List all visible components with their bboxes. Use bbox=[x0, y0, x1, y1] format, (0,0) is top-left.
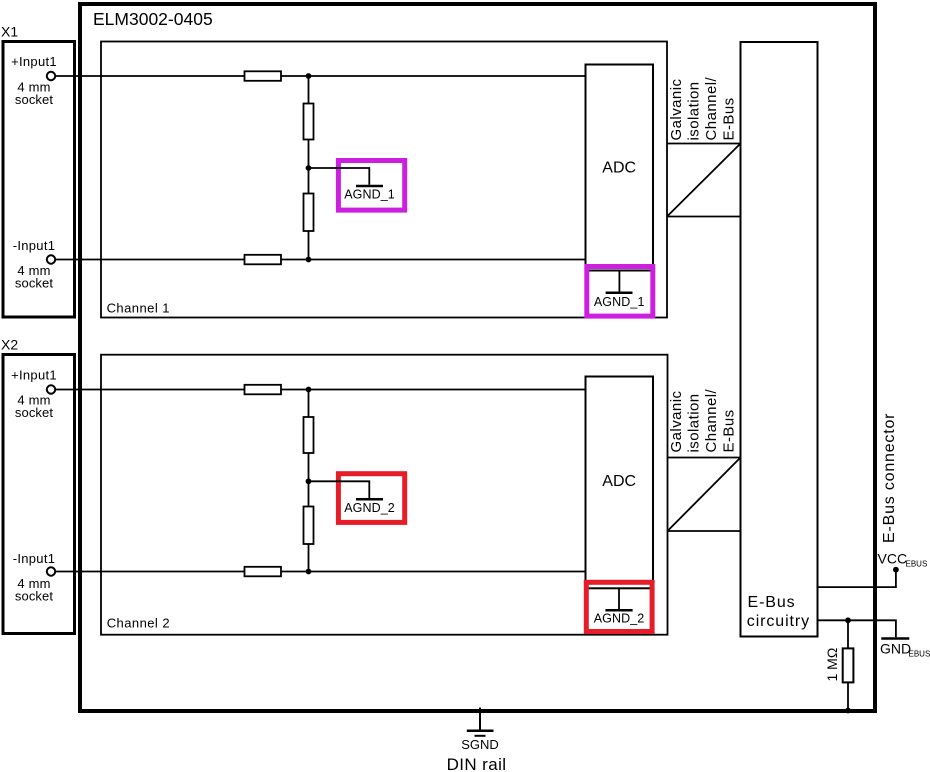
svg-text:Channel 2: Channel 2 bbox=[107, 616, 170, 631]
svg-text:ELM3002-0405: ELM3002-0405 bbox=[93, 9, 213, 29]
svg-text:+Input1: +Input1 bbox=[11, 54, 57, 69]
svg-text:E-Bus: E-Bus bbox=[748, 594, 796, 611]
svg-text:socket: socket bbox=[15, 92, 53, 107]
svg-text:-Input1: -Input1 bbox=[13, 551, 56, 566]
svg-text:isolation: isolation bbox=[686, 81, 703, 140]
svg-text:socket: socket bbox=[15, 405, 53, 420]
svg-text:Channel/: Channel/ bbox=[703, 388, 720, 452]
svg-text:EBUS: EBUS bbox=[906, 560, 928, 569]
svg-text:E-Bus: E-Bus bbox=[721, 409, 738, 452]
svg-text:socket: socket bbox=[15, 589, 53, 604]
svg-text:AGND_1: AGND_1 bbox=[344, 188, 395, 202]
svg-text:X1: X1 bbox=[1, 24, 18, 40]
svg-text:Galvanic: Galvanic bbox=[668, 78, 685, 140]
svg-text:+Input1: +Input1 bbox=[11, 368, 57, 383]
svg-text:socket: socket bbox=[15, 276, 53, 291]
svg-text:isolation: isolation bbox=[686, 393, 703, 452]
svg-text:ADC: ADC bbox=[602, 160, 636, 177]
svg-text:DIN rail: DIN rail bbox=[447, 755, 507, 772]
svg-text:-Input1: -Input1 bbox=[13, 238, 56, 253]
svg-text:E-Bus connector: E-Bus connector bbox=[881, 413, 898, 543]
svg-text:Channel/: Channel/ bbox=[703, 76, 720, 140]
svg-text:ADC: ADC bbox=[602, 473, 636, 490]
svg-text:EBUS: EBUS bbox=[909, 650, 930, 659]
svg-text:AGND_1: AGND_1 bbox=[594, 295, 645, 309]
svg-text:E-Bus: E-Bus bbox=[721, 97, 738, 140]
svg-text:AGND_2: AGND_2 bbox=[344, 501, 395, 515]
svg-text:X2: X2 bbox=[1, 337, 18, 353]
svg-text:1 MΩ: 1 MΩ bbox=[824, 648, 840, 682]
svg-text:AGND_2: AGND_2 bbox=[594, 612, 645, 626]
svg-text:VCC: VCC bbox=[878, 551, 908, 567]
svg-text:GND: GND bbox=[880, 641, 911, 657]
svg-text:SGND: SGND bbox=[461, 737, 499, 752]
svg-text:circuitry: circuitry bbox=[747, 613, 810, 630]
svg-text:Channel 1: Channel 1 bbox=[107, 301, 170, 316]
svg-text:Galvanic: Galvanic bbox=[668, 390, 685, 452]
